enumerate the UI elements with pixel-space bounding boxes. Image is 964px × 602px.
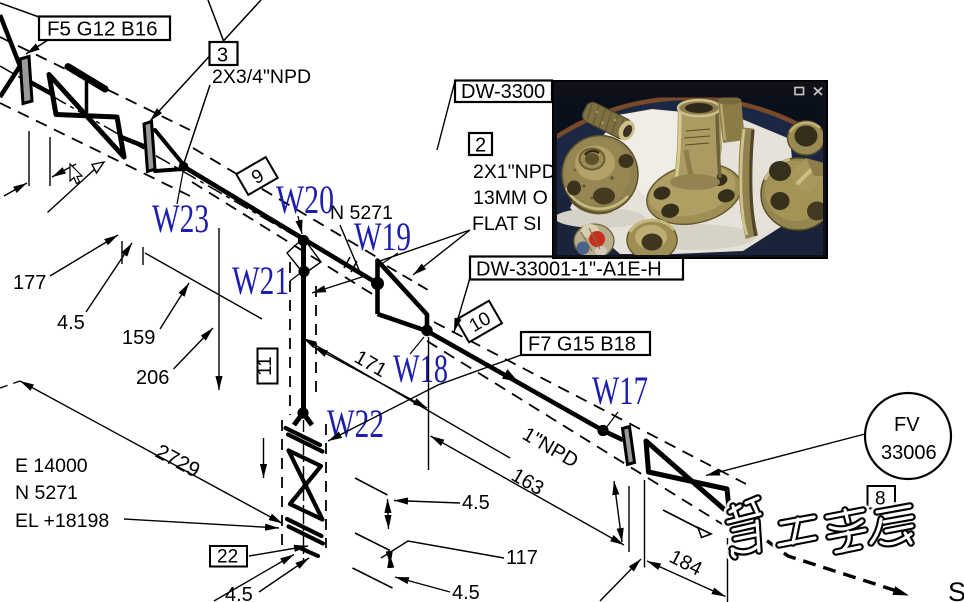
svg-text:2X1"NPD: 2X1"NPD [473,161,556,183]
svg-text:W19: W19 [354,214,411,259]
svg-text:2: 2 [475,135,486,157]
svg-text:177: 177 [13,272,46,294]
svg-text:FV: FV [894,414,920,436]
svg-text:W22: W22 [327,401,384,446]
svg-text:W20: W20 [276,177,334,222]
svg-text:E 14000: E 14000 [15,455,88,477]
svg-text:206: 206 [136,367,169,389]
svg-text:11: 11 [255,356,276,376]
svg-text:FLAT SI: FLAT SI [472,213,542,235]
svg-text:13MM O: 13MM O [473,187,548,209]
svg-text:4.5: 4.5 [462,492,490,514]
svg-text:F5 G12 B16: F5 G12 B16 [47,18,158,41]
svg-text:W17: W17 [592,368,648,413]
svg-text:117: 117 [506,547,538,569]
svg-text:N 5271: N 5271 [15,482,78,504]
svg-text:F7 G15 B18: F7 G15 B18 [528,334,636,356]
svg-text:EL +18198: EL +18198 [15,510,109,532]
svg-text:DW-3300: DW-3300 [461,81,545,103]
svg-text:33006: 33006 [881,442,937,464]
svg-text:S: S [948,577,964,602]
svg-text:4.5: 4.5 [452,582,480,602]
svg-text:4.5: 4.5 [225,584,253,602]
svg-text:W23: W23 [152,196,209,241]
svg-text:159: 159 [122,327,155,349]
svg-text:2X3/4"NPD: 2X3/4"NPD [212,66,311,88]
svg-text:3: 3 [217,45,228,67]
svg-text:W21: W21 [232,258,289,303]
svg-text:22: 22 [217,547,238,568]
svg-text:DW-33001-1"-A1E-H: DW-33001-1"-A1E-H [476,259,662,281]
svg-text:4.5: 4.5 [57,312,85,334]
